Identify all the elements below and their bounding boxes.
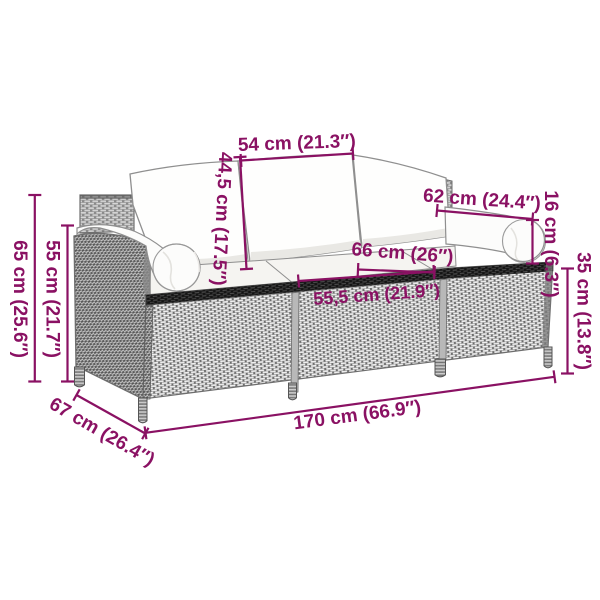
svg-text:55 cm (21.7″): 55 cm (21.7″)	[42, 240, 63, 358]
svg-text:170 cm (66.9″): 170 cm (66.9″)	[292, 397, 422, 435]
svg-text:35 cm (13.8″): 35 cm (13.8″)	[573, 252, 594, 370]
svg-text:16 cm (6.3″): 16 cm (6.3″)	[540, 190, 561, 297]
svg-text:65 cm (25.6″): 65 cm (25.6″)	[9, 240, 30, 358]
svg-text:54 cm (21.3″): 54 cm (21.3″)	[238, 131, 357, 156]
